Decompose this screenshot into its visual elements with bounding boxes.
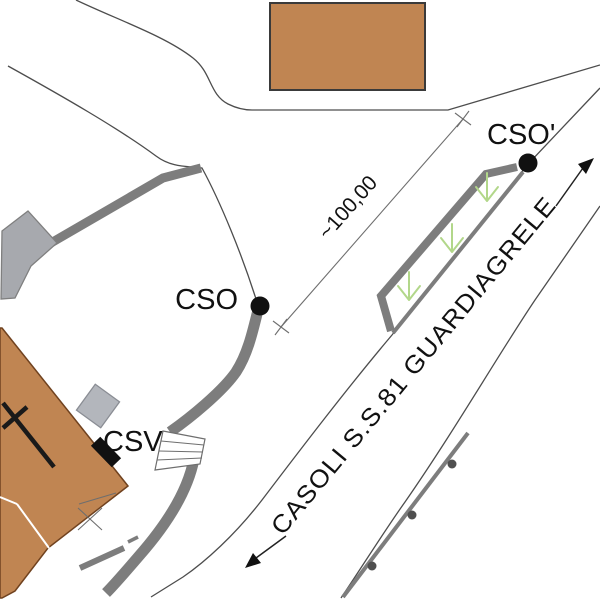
- guardrail-post: [448, 460, 457, 469]
- road-arrow-sw-icon: [245, 536, 286, 568]
- csv-label: CSV: [103, 426, 163, 458]
- cso-label: CSO: [175, 284, 238, 316]
- guardrail-post: [368, 562, 377, 571]
- boundary-line-to-cso: [8, 66, 256, 299]
- footpaths: [44, 168, 258, 593]
- footpath-upper: [44, 168, 201, 247]
- cso-point: [251, 297, 270, 316]
- site-plan-canvas: CSO CSO' CSV ~100,00 CASOLI S.S.81 GUARD…: [0, 0, 600, 600]
- cso-prime-point: [519, 154, 538, 173]
- guardrail-post: [408, 511, 417, 520]
- guardrail: [343, 433, 468, 597]
- road-arrow-ne-icon: [556, 158, 594, 206]
- footpath-cso-to-stairs: [170, 310, 258, 432]
- footpath-segment: [80, 548, 124, 568]
- footpath-segment-dash: [128, 537, 138, 542]
- dimension-label: ~100,00: [314, 171, 382, 244]
- small-outbuilding: [76, 384, 119, 428]
- gray-annex: [1, 211, 57, 299]
- north-building: [270, 3, 425, 90]
- cso-prime-label: CSO': [487, 119, 555, 151]
